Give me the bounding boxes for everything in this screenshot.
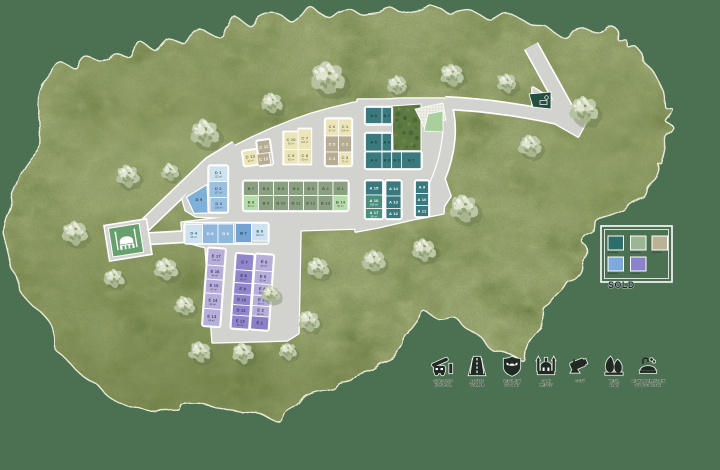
svg-text:B 9: B 9: [263, 200, 270, 205]
svg-text:E 1: E 1: [256, 320, 264, 326]
svg-text:D 1: D 1: [215, 170, 222, 175]
svg-text:B 8: B 8: [248, 199, 255, 204]
svg-text:180 m²: 180 m²: [370, 204, 378, 207]
svg-text:A 2: A 2: [393, 158, 400, 163]
svg-text:D 5: D 5: [207, 231, 214, 236]
svg-text:B 13: B 13: [321, 200, 331, 205]
svg-text:96 m²: 96 m²: [191, 236, 198, 239]
svg-text:80 m²: 80 m²: [258, 302, 265, 305]
svg-text:82 m²: 82 m²: [260, 279, 267, 282]
svg-text:KONTROL: KONTROL: [434, 383, 451, 387]
svg-text:A 13: A 13: [389, 200, 399, 205]
svg-text:E 7: E 7: [241, 259, 249, 265]
svg-text:A 17: A 17: [369, 210, 379, 215]
svg-text:108 m²: 108 m²: [215, 207, 223, 210]
svg-text:E 9: E 9: [239, 286, 247, 292]
svg-text:C 7: C 7: [301, 136, 308, 141]
svg-text:B 1: B 1: [337, 186, 344, 191]
svg-text:C 5: C 5: [329, 141, 336, 146]
svg-text:B 3: B 3: [307, 186, 314, 191]
svg-text:107 m²: 107 m²: [214, 191, 222, 194]
svg-text:B 12: B 12: [306, 200, 316, 205]
svg-text:A 8: A 8: [370, 113, 377, 118]
svg-text:90 m²: 90 m²: [302, 159, 309, 162]
svg-text:C 3: C 3: [342, 155, 349, 160]
svg-text:D 11: D 11: [236, 307, 246, 313]
svg-text:D 2: D 2: [215, 186, 222, 191]
svg-text:D 9: D 9: [196, 197, 203, 202]
svg-text:C 10: C 10: [286, 137, 296, 142]
svg-text:112 m²: 112 m²: [214, 176, 222, 179]
svg-text:101 m²: 101 m²: [212, 259, 220, 263]
svg-text:82 m²: 82 m²: [237, 324, 244, 327]
svg-text:B 8: B 8: [256, 229, 263, 234]
svg-text:80 m²: 80 m²: [240, 278, 247, 281]
svg-text:A 3: A 3: [384, 158, 391, 163]
svg-text:A 7: A 7: [383, 113, 390, 118]
svg-text:A 1: A 1: [408, 158, 415, 163]
svg-text:C 4: C 4: [329, 156, 336, 161]
svg-text:SU DOGALGAZ: SU DOGALGAZ: [635, 383, 661, 387]
svg-text:D 6: D 6: [222, 231, 229, 236]
svg-text:A 10: A 10: [417, 197, 427, 202]
svg-text:E 10: E 10: [237, 297, 247, 303]
svg-text:80 m²: 80 m²: [257, 313, 264, 316]
svg-text:YOLLAR: YOLLAR: [470, 383, 485, 387]
svg-text:A 15: A 15: [369, 185, 379, 190]
svg-text:A 16: A 16: [369, 198, 379, 203]
svg-text:SOLD: SOLD: [608, 280, 635, 290]
svg-text:118 m²: 118 m²: [256, 234, 264, 237]
svg-text:87 m²: 87 m²: [211, 288, 218, 291]
svg-text:C 9: C 9: [288, 153, 295, 158]
svg-text:92 m²: 92 m²: [261, 264, 268, 267]
svg-text:A 4: A 4: [370, 158, 377, 163]
svg-text:A 14: A 14: [389, 186, 399, 191]
svg-text:80 m²: 80 m²: [337, 205, 344, 208]
svg-text:A 9: A 9: [419, 185, 426, 190]
svg-text:98 m²: 98 m²: [208, 319, 215, 322]
svg-text:95 m²: 95 m²: [288, 143, 295, 146]
svg-text:B 11: B 11: [291, 200, 301, 205]
svg-text:MESCIT: MESCIT: [539, 383, 553, 387]
svg-text:87 m²: 87 m²: [329, 129, 336, 132]
svg-text:B 6: B 6: [263, 186, 270, 191]
svg-text:B 5: B 5: [278, 186, 285, 191]
svg-text:24 SAAT: 24 SAAT: [505, 383, 520, 387]
svg-text:104 m²: 104 m²: [341, 129, 349, 132]
svg-text:82 m²: 82 m²: [209, 303, 216, 306]
svg-text:C 1: C 1: [342, 124, 349, 129]
svg-text:A 12: A 12: [389, 211, 399, 216]
svg-text:ALAN: ALAN: [609, 383, 619, 387]
svg-text:A 11: A 11: [418, 208, 427, 213]
svg-text:C 8: C 8: [301, 153, 308, 158]
svg-text:B 7: B 7: [240, 230, 247, 235]
svg-text:A 5: A 5: [370, 140, 377, 145]
svg-text:B 7: B 7: [248, 186, 255, 191]
svg-text:A 6: A 6: [383, 140, 390, 145]
svg-text:D 3: D 3: [215, 201, 222, 206]
svg-text:B 4: B 4: [293, 186, 300, 191]
svg-text:95 m²: 95 m²: [371, 215, 378, 218]
svg-text:118 m²: 118 m²: [301, 141, 309, 144]
svg-text:B 14: B 14: [336, 199, 346, 204]
svg-text:B 10: B 10: [276, 200, 286, 205]
svg-text:CCTV: CCTV: [575, 379, 585, 383]
svg-text:B 2: B 2: [322, 186, 329, 191]
svg-text:80 m²: 80 m²: [288, 159, 295, 162]
svg-text:89 m²: 89 m²: [248, 205, 255, 208]
svg-text:C 2: C 2: [342, 141, 349, 146]
svg-text:D 4: D 4: [190, 230, 197, 235]
svg-text:90 m²: 90 m²: [212, 274, 219, 277]
svg-text:71 m²: 71 m²: [342, 161, 349, 164]
svg-text:C 6: C 6: [329, 124, 336, 129]
